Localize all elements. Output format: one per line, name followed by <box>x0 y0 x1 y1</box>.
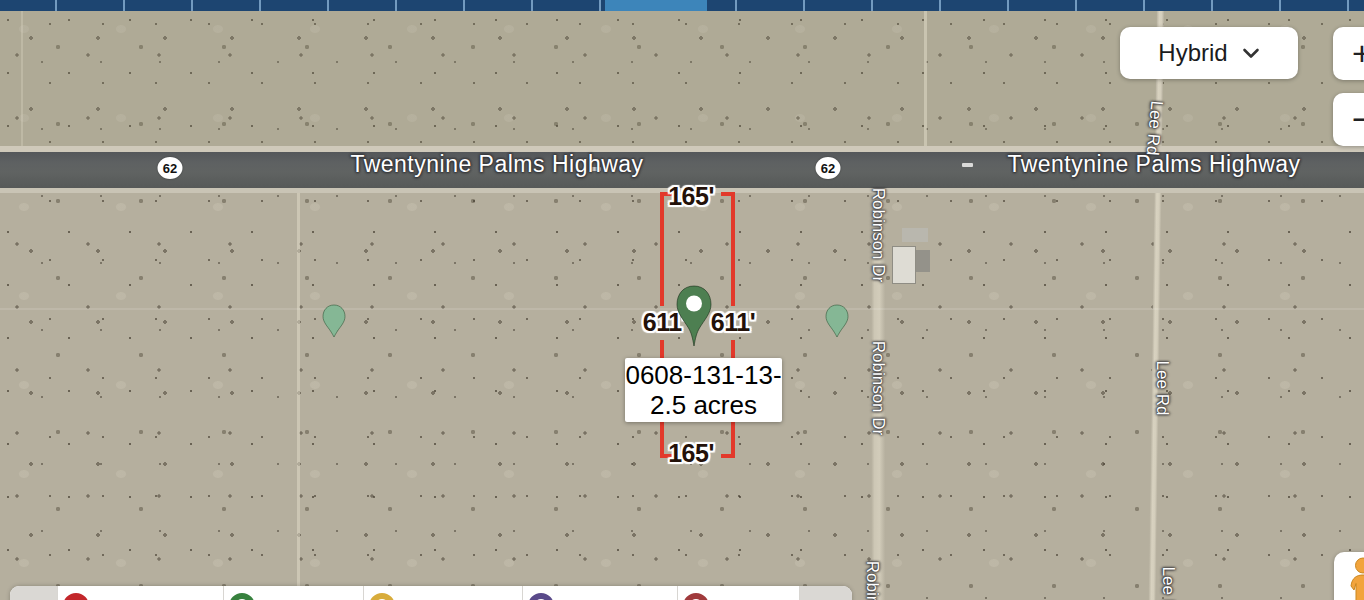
dirt-trail <box>924 11 927 146</box>
parcel-outline[interactable] <box>660 192 664 306</box>
map-canvas[interactable]: Twentynine Palms Highway Twentynine Palm… <box>0 11 1364 600</box>
building <box>892 246 916 284</box>
zoom-in-button[interactable]: + <box>1333 27 1364 80</box>
parcel-outline[interactable] <box>731 192 735 306</box>
purple-pin-icon <box>528 593 554 600</box>
highway-label-left: Twentynine Palms Highway <box>350 151 643 178</box>
progress-highlight-segment <box>605 0 707 11</box>
yellow-pin-icon <box>369 593 395 600</box>
nearby-parcel-pin[interactable] <box>322 304 346 338</box>
nearby-parcel-pin[interactable] <box>825 304 849 338</box>
map-layer-label: Hybrid <box>1158 39 1227 67</box>
robinson-dr-label: Robinson Dr <box>862 561 882 600</box>
maroon-pin-icon <box>683 593 709 600</box>
toolbar-prev-button[interactable] <box>10 586 58 600</box>
parcel-acreage: 2.5 acres <box>650 390 757 420</box>
pegman-icon <box>1345 556 1364 600</box>
toolbar-yellow-pin-button[interactable] <box>364 586 524 600</box>
selected-parcel-pin[interactable] <box>676 285 712 347</box>
robinson-dr-label: Robinson Dr <box>868 341 888 436</box>
dirt-trail <box>21 11 23 146</box>
zoom-out-button[interactable]: − <box>1333 93 1364 146</box>
app-screen: Twentynine Palms Highway Twentynine Palm… <box>0 0 1364 600</box>
lee-rd-label: Lee Rd <box>1158 567 1178 600</box>
toolbar-red-pin-button[interactable] <box>58 586 225 600</box>
toolbar-next-button[interactable] <box>800 586 852 600</box>
parcel-depth-right-label: 611' <box>711 308 755 337</box>
map-layer-button[interactable]: Hybrid <box>1120 27 1298 79</box>
top-progress-bar <box>0 0 1364 11</box>
parcel-info-card: 0608-131-13- 2.5 acres <box>625 358 782 422</box>
lee-rd-label: Lee Rd <box>1152 361 1172 416</box>
parcel-apn: 0608-131-13- <box>625 360 781 390</box>
route-62-shield: 62 <box>816 157 841 179</box>
parcel-width-bottom-label: 165' <box>668 439 714 468</box>
robinson-dr-label: Robinson Dr <box>868 188 888 283</box>
green-pin-icon <box>229 593 255 600</box>
toolbar-green-pin-button[interactable] <box>224 586 363 600</box>
toolbar-maroon-pin-button[interactable] <box>678 586 800 600</box>
chevron-down-icon <box>1242 48 1260 59</box>
parcel-outline[interactable] <box>721 454 735 458</box>
red-pin-icon <box>63 593 89 600</box>
street-view-pegman-button[interactable] <box>1334 552 1364 600</box>
building <box>902 228 928 242</box>
pin-toolbar <box>10 586 852 600</box>
lane-dash <box>962 163 973 167</box>
parcel-width-top-label: 165' <box>668 182 714 211</box>
building <box>916 250 930 272</box>
dirt-trail <box>297 188 300 600</box>
route-62-shield: 62 <box>158 157 183 179</box>
toolbar-purple-pin-button[interactable] <box>523 586 678 600</box>
